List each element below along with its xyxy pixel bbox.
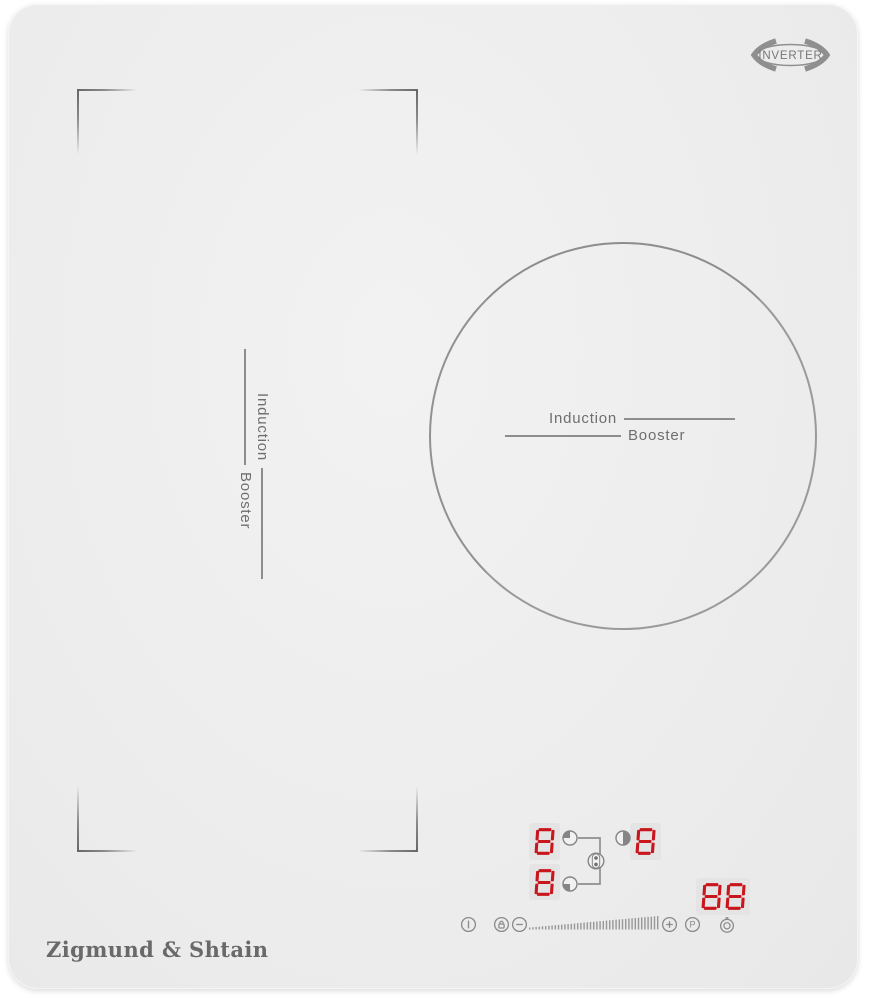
seven-segment-digit (725, 883, 746, 910)
minus-icon (512, 918, 526, 932)
booster-p-button[interactable]: P (684, 916, 701, 933)
quarter-circle-top-left-icon (563, 831, 577, 845)
left-zone-label-line (262, 468, 264, 579)
half-circle-right-icon (616, 831, 630, 845)
left-zone-booster-text: Booster (237, 472, 254, 529)
seven-segment-digit (534, 828, 555, 855)
slider-ticks-icon (528, 912, 661, 931)
plus-icon (662, 918, 676, 932)
right-zone-induction-text: Induction (549, 410, 617, 427)
cooktop-product-image: INVERTER Induction (0, 0, 869, 1000)
right-zone-booster-text: Booster (628, 427, 685, 444)
quarter-circle-bottom-left-icon (563, 877, 577, 891)
plus-button[interactable] (661, 916, 678, 933)
power-slider[interactable] (528, 912, 661, 936)
lock-button[interactable] (493, 916, 510, 933)
power-button[interactable] (460, 916, 477, 933)
minus-button[interactable] (511, 916, 528, 933)
left-zone-label: Induction Booster (237, 349, 271, 579)
cooktop-glass-panel: INVERTER Induction (8, 4, 858, 989)
right-zone-label: Induction Booster (505, 410, 735, 444)
timer-display (696, 878, 750, 915)
p-letter: P (689, 920, 695, 930)
left-zone-induction-text: Induction (254, 393, 271, 461)
power-icon (461, 918, 475, 932)
timer-button[interactable] (718, 916, 735, 933)
right-zone-label-line (505, 435, 621, 437)
zone-indicator-cluster (556, 822, 640, 907)
inverter-badge: INVERTER (738, 34, 843, 81)
seven-segment-digit (534, 869, 555, 896)
left-zone-label-line (245, 349, 247, 465)
right-zone-label-line (624, 418, 735, 420)
inverter-badge-label: INVERTER (758, 50, 822, 62)
seven-segment-digit (701, 883, 722, 910)
brand-logo: Zigmund & Shtain (46, 937, 268, 962)
timer-clock-icon (720, 917, 733, 931)
lock-icon (494, 918, 508, 932)
bridge-link-icon (588, 853, 604, 869)
